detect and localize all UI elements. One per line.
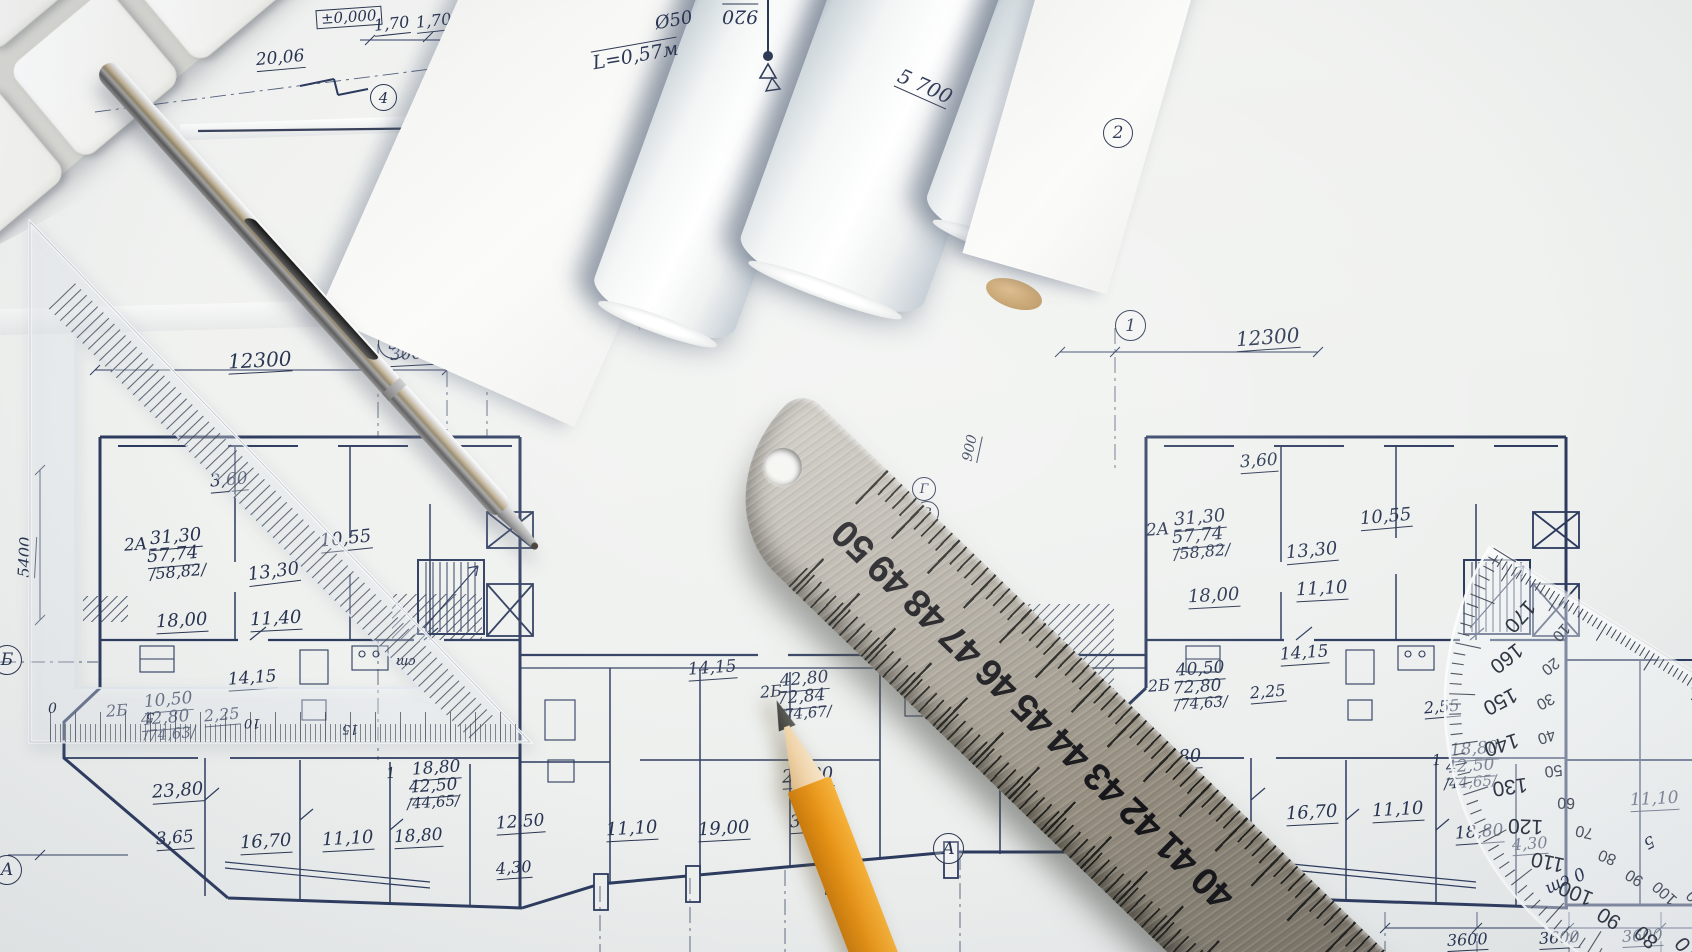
dimension-label: 5 <box>146 710 154 723</box>
tool-scale-labels: 051015cm0 cm5 <box>0 0 1692 952</box>
desk-photo-scene: ±0,0001,701,7020,06123003000180054002A31… <box>0 0 1692 952</box>
dimension-label: 10 <box>244 716 261 729</box>
dimension-label: 0 cm <box>1542 863 1587 898</box>
dimension-label: 0 <box>48 702 57 716</box>
dimension-label: cm <box>396 655 416 668</box>
dimension-label: 15 <box>342 722 359 735</box>
dimension-label: 5 <box>1641 833 1658 852</box>
